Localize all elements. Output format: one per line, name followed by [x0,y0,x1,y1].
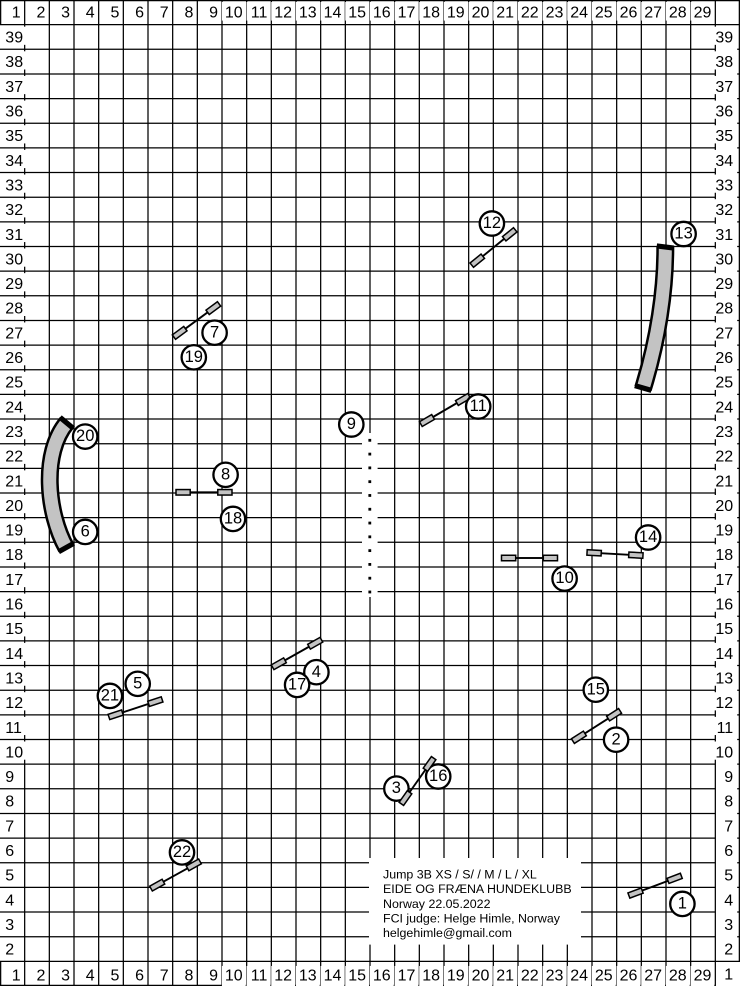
svg-text:9: 9 [347,415,356,433]
svg-text:12: 12 [483,214,501,232]
svg-text:20: 20 [472,967,490,984]
svg-text:7: 7 [724,818,733,835]
svg-text:19: 19 [715,523,733,540]
svg-text:22: 22 [173,843,191,861]
svg-text:38: 38 [5,54,23,71]
svg-text:14: 14 [324,5,342,22]
svg-text:4: 4 [312,663,321,681]
svg-text:4: 4 [5,892,14,909]
svg-text:18: 18 [224,510,242,528]
svg-text:39: 39 [715,30,733,47]
svg-text:24: 24 [715,399,733,416]
svg-text:28: 28 [669,5,687,22]
svg-text:31: 31 [5,227,23,244]
svg-text:21: 21 [5,473,23,490]
svg-text:22: 22 [715,449,733,466]
svg-text:20: 20 [472,5,490,22]
svg-text:10: 10 [225,5,243,22]
svg-text:11: 11 [5,720,22,737]
svg-text:19: 19 [447,5,465,22]
svg-text:8: 8 [5,794,14,811]
svg-text:25: 25 [715,375,733,392]
svg-text:11: 11 [251,967,268,984]
svg-text:38: 38 [715,54,733,71]
svg-text:8: 8 [184,967,193,984]
svg-text:Jump 3B XS / S/ / M / L / XL: Jump 3B XS / S/ / M / L / XL [383,867,537,881]
svg-text:5: 5 [133,674,142,692]
svg-text:27: 27 [644,967,662,984]
svg-text:23: 23 [715,424,733,441]
svg-text:16: 16 [5,597,23,614]
svg-text:12: 12 [274,967,292,984]
svg-text:6: 6 [81,523,90,541]
svg-text:26: 26 [5,350,23,367]
svg-text:24: 24 [570,5,588,22]
svg-text:18: 18 [422,5,440,22]
svg-text:helgehimle@gmail.com: helgehimle@gmail.com [383,926,512,940]
svg-text:37: 37 [5,79,23,96]
svg-text:30: 30 [5,251,23,268]
svg-text:6: 6 [135,967,144,984]
svg-text:1: 1 [12,5,21,22]
svg-text:5: 5 [724,868,733,885]
svg-text:11: 11 [717,720,734,737]
svg-text:27: 27 [644,5,662,22]
svg-text:20: 20 [76,427,94,445]
svg-text:13: 13 [299,5,317,22]
svg-text:19: 19 [447,967,465,984]
svg-text:27: 27 [715,325,733,342]
svg-text:9: 9 [724,769,733,786]
svg-text:13: 13 [674,225,692,243]
svg-text:19: 19 [185,348,203,366]
svg-text:36: 36 [5,104,23,121]
svg-text:4: 4 [86,967,95,984]
svg-text:15: 15 [715,621,733,638]
svg-text:29: 29 [694,967,712,984]
svg-text:16: 16 [373,5,391,22]
svg-text:26: 26 [620,5,638,22]
svg-text:6: 6 [135,5,144,22]
svg-text:4: 4 [724,892,733,909]
svg-text:17: 17 [398,5,416,22]
svg-text:8: 8 [184,5,193,22]
svg-text:37: 37 [715,79,733,96]
svg-text:2: 2 [5,942,14,959]
svg-text:39: 39 [5,30,23,47]
svg-text:10: 10 [555,569,573,587]
svg-text:29: 29 [715,276,733,293]
svg-text:21: 21 [101,687,119,705]
svg-text:1: 1 [678,895,687,913]
svg-text:33: 33 [715,177,733,194]
svg-text:26: 26 [620,967,638,984]
svg-text:3: 3 [5,917,14,934]
svg-text:5: 5 [110,967,119,984]
svg-text:18: 18 [422,967,440,984]
svg-text:2: 2 [36,967,45,984]
svg-text:29: 29 [5,276,23,293]
svg-text:2: 2 [612,730,621,748]
svg-text:26: 26 [715,350,733,367]
svg-text:22: 22 [521,5,539,22]
svg-text:3: 3 [61,967,70,984]
svg-text:7: 7 [5,818,14,835]
svg-text:12: 12 [5,695,23,712]
svg-text:25: 25 [595,5,613,22]
svg-text:21: 21 [715,473,733,490]
svg-text:9: 9 [5,769,14,786]
svg-text:33: 33 [5,177,23,194]
svg-text:15: 15 [348,967,366,984]
svg-text:17: 17 [398,967,416,984]
svg-text:15: 15 [348,5,366,22]
svg-text:14: 14 [639,528,657,546]
svg-text:16: 16 [373,967,391,984]
svg-text:13: 13 [715,670,733,687]
svg-text:35: 35 [715,128,733,145]
svg-text:10: 10 [5,744,23,761]
svg-text:18: 18 [5,547,23,564]
svg-text:3: 3 [392,779,401,797]
svg-text:25: 25 [5,375,23,392]
svg-text:34: 34 [5,153,23,170]
svg-text:20: 20 [715,498,733,515]
svg-text:22: 22 [5,449,23,466]
svg-text:36: 36 [715,104,733,121]
svg-text:6: 6 [5,843,14,860]
svg-text:FCI judge: Helge Himle, Norway: FCI judge: Helge Himle, Norway [383,912,561,926]
svg-text:35: 35 [5,128,23,145]
svg-text:25: 25 [595,967,613,984]
svg-text:21: 21 [496,5,514,22]
svg-text:13: 13 [5,670,23,687]
svg-text:9: 9 [209,967,218,984]
svg-text:13: 13 [299,967,317,984]
svg-text:6: 6 [724,843,733,860]
svg-text:2: 2 [36,5,45,22]
svg-text:EIDE OG FRÆNA HUNDEKLUBB: EIDE OG FRÆNA HUNDEKLUBB [383,882,572,896]
svg-text:12: 12 [715,695,733,712]
svg-text:29: 29 [694,5,712,22]
svg-text:24: 24 [570,967,588,984]
svg-text:18: 18 [715,547,733,564]
svg-text:21: 21 [496,967,514,984]
svg-text:7: 7 [160,967,169,984]
svg-text:17: 17 [715,572,733,589]
svg-text:30: 30 [715,251,733,268]
svg-text:2: 2 [724,942,733,959]
svg-text:3: 3 [61,5,70,22]
svg-text:8: 8 [724,794,733,811]
svg-text:5: 5 [5,868,14,885]
svg-text:19: 19 [5,523,23,540]
svg-text:7: 7 [210,323,219,341]
svg-text:8: 8 [221,465,230,483]
svg-text:1: 1 [724,966,733,983]
svg-text:28: 28 [669,967,687,984]
svg-text:23: 23 [546,5,564,22]
svg-text:16: 16 [429,767,447,785]
svg-text:27: 27 [5,325,23,342]
svg-text:11: 11 [251,5,268,22]
svg-text:14: 14 [715,646,733,663]
svg-text:17: 17 [288,676,306,694]
svg-text:34: 34 [715,153,733,170]
svg-text:7: 7 [160,5,169,22]
svg-text:28: 28 [715,301,733,318]
svg-text:Norway 22.05.2022: Norway 22.05.2022 [383,897,491,911]
svg-text:10: 10 [715,744,733,761]
svg-text:9: 9 [209,5,218,22]
svg-text:5: 5 [110,5,119,22]
svg-text:11: 11 [470,397,487,415]
svg-text:1: 1 [12,967,21,984]
svg-text:14: 14 [324,967,342,984]
svg-text:32: 32 [715,202,733,219]
svg-text:14: 14 [5,646,23,663]
svg-text:32: 32 [5,202,23,219]
svg-text:23: 23 [5,424,23,441]
svg-text:15: 15 [587,680,605,698]
svg-text:4: 4 [86,5,95,22]
svg-text:20: 20 [5,498,23,515]
svg-text:23: 23 [546,967,564,984]
svg-text:24: 24 [5,399,23,416]
svg-text:17: 17 [5,572,23,589]
svg-text:31: 31 [715,227,733,244]
svg-text:28: 28 [5,301,23,318]
svg-text:15: 15 [5,621,23,638]
svg-text:22: 22 [521,967,539,984]
svg-text:16: 16 [715,597,733,614]
svg-text:12: 12 [274,5,292,22]
svg-text:3: 3 [724,917,733,934]
svg-text:10: 10 [225,967,243,984]
